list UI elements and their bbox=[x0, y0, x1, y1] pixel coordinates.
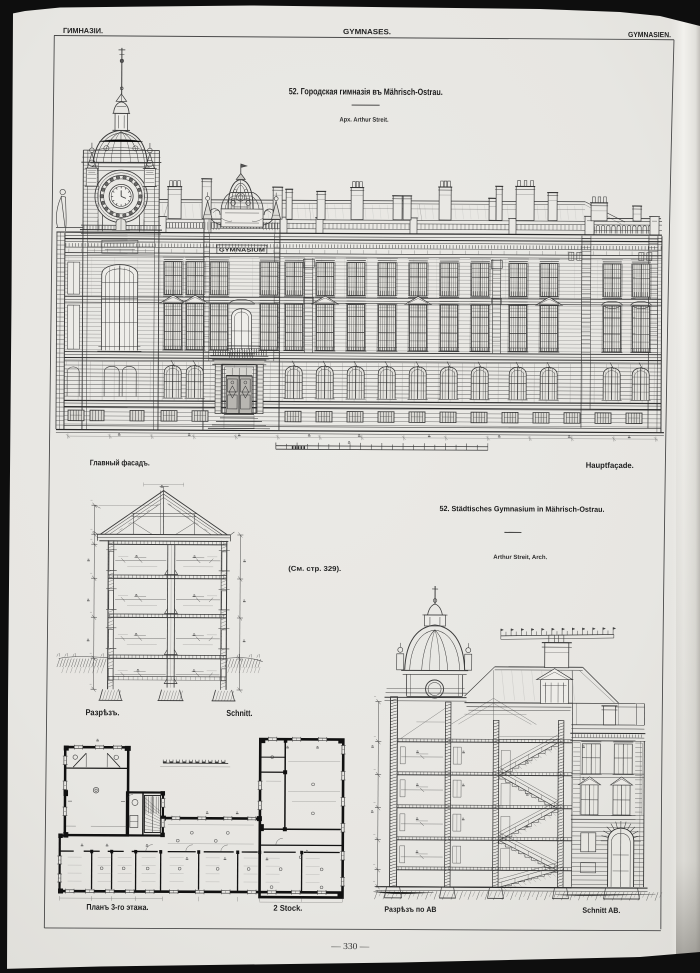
svg-text:Schnitt.: Schnitt. bbox=[226, 708, 252, 718]
svg-text:52. Городская гимназія въ Mähr: 52. Городская гимназія въ Mährisch-Ostra… bbox=[289, 86, 443, 97]
svg-text:2 Stock.: 2 Stock. bbox=[273, 904, 302, 913]
svg-text:GYMNASIUM: GYMNASIUM bbox=[219, 247, 266, 253]
svg-text:(См. стр. 329).: (См. стр. 329). bbox=[288, 566, 341, 573]
svg-text:Планъ 3-го этажа.: Планъ 3-го этажа. bbox=[86, 903, 148, 912]
svg-text:— 330 —: — 330 — bbox=[330, 941, 370, 951]
svg-text:Разрѣзъ.: Разрѣзъ. bbox=[85, 707, 119, 717]
svg-text:Арх. Arthur Streit.: Арх. Arthur Streit. bbox=[340, 116, 389, 123]
svg-text:GYMNASIEN.: GYMNASIEN. bbox=[628, 30, 671, 39]
svg-text:GYMNASES.: GYMNASES. bbox=[343, 27, 391, 36]
svg-text:Arthur Streit, Arch.: Arthur Streit, Arch. bbox=[493, 555, 547, 561]
svg-text:Главный фасадъ.: Главный фасадъ. bbox=[90, 458, 150, 467]
svg-text:52. Städtisches Gymnasium in M: 52. Städtisches Gymnasium in Mährisch-Os… bbox=[440, 504, 605, 514]
svg-text:Разрѣзъ по AB: Разрѣзъ по AB bbox=[384, 905, 436, 914]
svg-text:ГИМНАЗIИ.: ГИМНАЗIИ. bbox=[63, 26, 103, 35]
svg-text:Schnitt AB.: Schnitt AB. bbox=[582, 906, 620, 915]
svg-text:Hauptfaçade.: Hauptfaçade. bbox=[586, 461, 634, 470]
